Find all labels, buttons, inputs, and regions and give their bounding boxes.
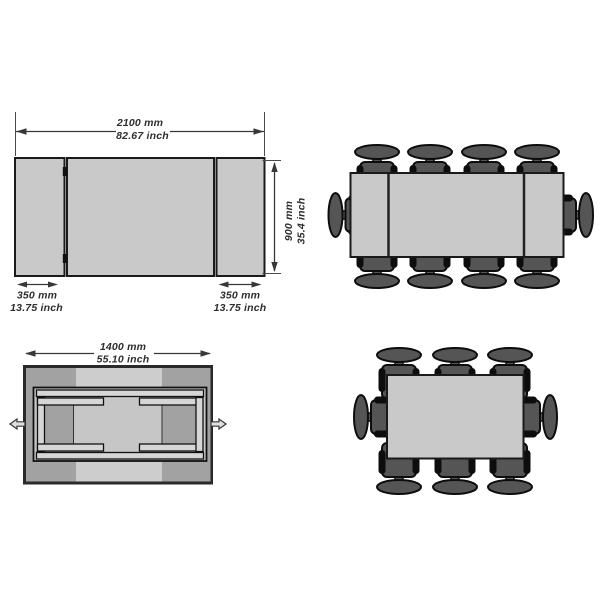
extended-tabletop-dimension-view: 2100 mm 82.67 inch 900 mm 35.4 inch 350 … xyxy=(10,112,307,314)
dim-label-left-leaf-inch: 13.75 inch xyxy=(10,302,63,314)
extended-table-seating-view xyxy=(329,145,594,288)
compact-table-top xyxy=(387,375,524,459)
dim-arrowhead-icon xyxy=(201,350,212,356)
extension-direction-arrow-icon xyxy=(211,419,226,429)
dim-arrowhead-icon xyxy=(219,282,229,288)
mechanism-leaf-under-frame xyxy=(45,405,74,444)
dim-arrowhead-icon xyxy=(25,350,36,356)
mechanism-carriage-bar xyxy=(196,398,203,452)
mechanism-carriage-bar xyxy=(140,444,203,451)
diagram-canvas: 2100 mm 82.67 inch 900 mm 35.4 inch 350 … xyxy=(0,0,600,600)
tabletop-center-section xyxy=(67,158,214,276)
dim-arrowhead-icon xyxy=(271,262,277,272)
dim-arrowhead-icon xyxy=(271,162,277,172)
dim-label-depth-inch: 35.4 inch xyxy=(296,198,308,245)
tabletop-left-leaf xyxy=(15,158,65,276)
dim-arrowhead-icon xyxy=(254,128,265,134)
dim-label-extended-width-mm: 2100 mm xyxy=(116,117,163,129)
folded-table-mechanism-view: 1400 mm 55.10 inch xyxy=(10,341,226,483)
mechanism-leaf-under-frame xyxy=(162,405,196,444)
extension-direction-arrow-icon xyxy=(10,419,25,429)
dim-label-left-leaf-mm: 350 mm xyxy=(17,290,57,302)
mechanism-carriage-bar xyxy=(140,398,203,405)
furniture-dimension-diagram: 2100 mm 82.67 inch 900 mm 35.4 inch 350 … xyxy=(0,0,600,600)
dim-label-folded-width-inch: 55.10 inch xyxy=(97,354,150,366)
dim-label-depth-mm: 900 mm xyxy=(283,201,295,241)
tabletop-right-leaf xyxy=(217,158,265,276)
dim-label-extended-width-inch: 82.67 inch xyxy=(116,130,169,142)
dim-arrowhead-icon xyxy=(252,282,262,288)
hinge-mark xyxy=(63,167,68,176)
hinge-mark xyxy=(63,254,68,263)
dim-arrowhead-icon xyxy=(17,282,27,288)
dim-arrowhead-icon xyxy=(48,282,58,288)
dim-label-right-leaf-mm: 350 mm xyxy=(220,290,260,302)
compact-table-seating-view xyxy=(354,348,557,494)
mechanism-slide-rail xyxy=(37,453,204,460)
mechanism-carriage-bar xyxy=(38,398,104,405)
mechanism-slide-rail xyxy=(37,390,204,397)
dim-label-right-leaf-inch: 13.75 inch xyxy=(214,302,267,314)
dim-arrowhead-icon xyxy=(16,128,27,134)
extended-table-top xyxy=(351,173,564,257)
mechanism-carriage-bar xyxy=(38,444,104,451)
dim-label-folded-width-mm: 1400 mm xyxy=(100,341,146,353)
